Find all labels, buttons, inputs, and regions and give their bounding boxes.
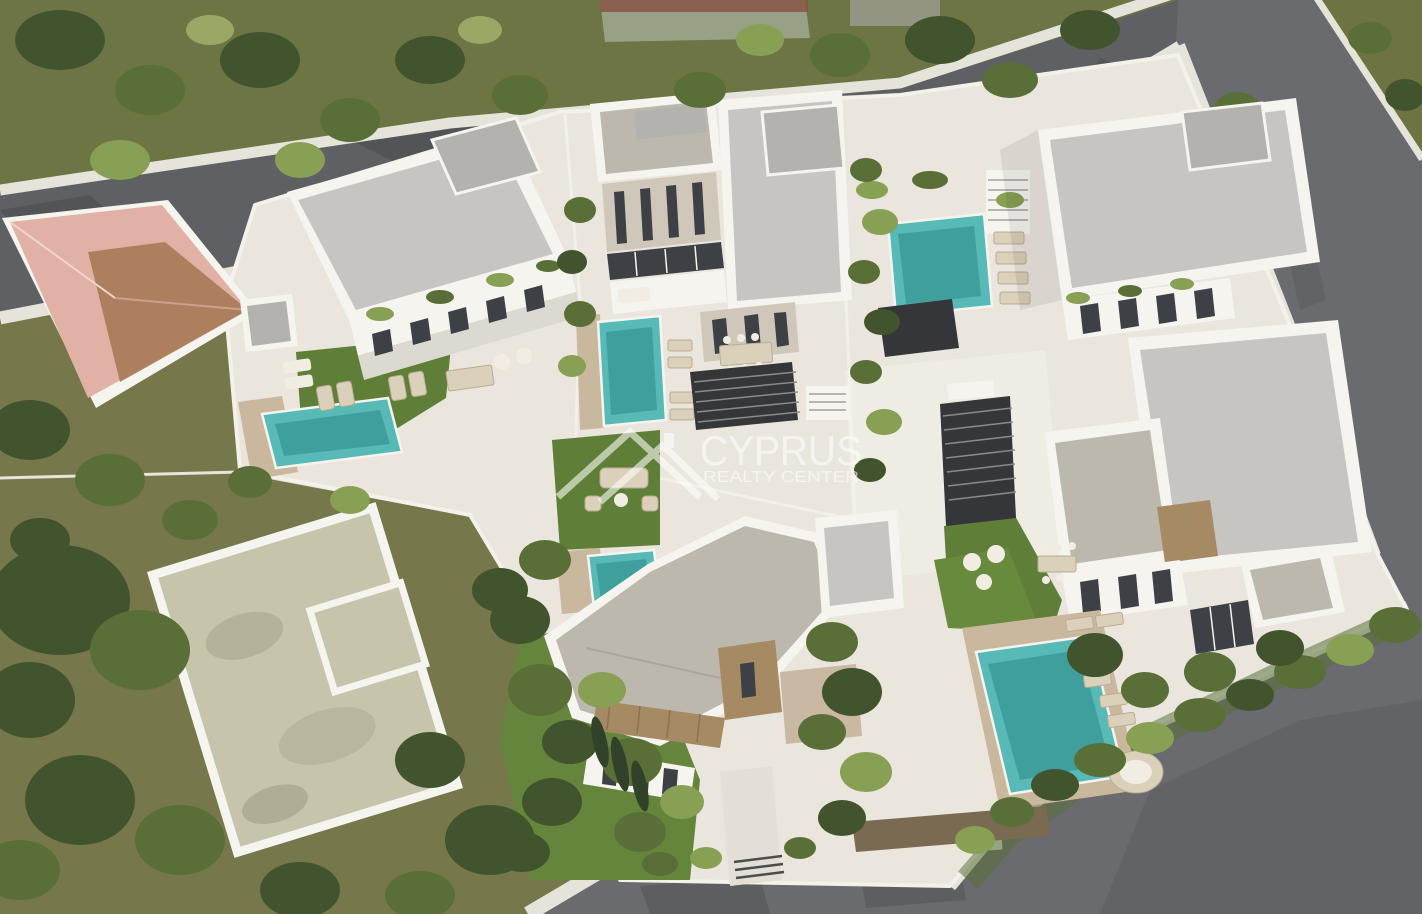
dining-table	[1038, 556, 1076, 572]
tree	[25, 755, 135, 845]
chair	[1040, 546, 1048, 554]
bush	[186, 15, 234, 45]
hedge-bush	[955, 826, 995, 854]
dining-table	[719, 342, 772, 366]
tree	[542, 720, 598, 764]
hedge-bush	[1369, 607, 1421, 643]
tree	[1121, 672, 1169, 708]
bush	[864, 309, 900, 335]
window	[1156, 293, 1177, 324]
tree	[75, 454, 145, 506]
tree	[135, 805, 225, 875]
tree	[818, 800, 866, 836]
hedge-bush	[990, 797, 1034, 827]
planter	[1118, 285, 1142, 297]
window	[1118, 574, 1139, 609]
chair	[1056, 574, 1064, 582]
tree	[1184, 652, 1236, 692]
chair	[737, 334, 745, 342]
tree	[519, 540, 571, 580]
bush	[557, 250, 587, 274]
planter	[366, 307, 394, 321]
pouf	[963, 553, 981, 571]
old-building-roof-edge	[600, 0, 808, 12]
chair	[1068, 542, 1076, 550]
tree	[445, 805, 535, 875]
armchair	[585, 496, 601, 511]
bush	[850, 158, 882, 182]
scene-canvas: CYPRUS REALTY CENTER	[0, 0, 1422, 914]
pouf	[976, 574, 992, 590]
tree	[1348, 22, 1392, 54]
tree	[115, 65, 185, 115]
tree	[15, 10, 105, 70]
window	[1080, 303, 1101, 334]
tree	[798, 714, 846, 750]
tree	[806, 622, 858, 662]
chair	[494, 354, 510, 370]
hedge-bush	[642, 852, 678, 876]
tree	[492, 75, 548, 115]
villa-e-tower-roof	[824, 521, 894, 606]
pergola	[690, 362, 798, 430]
bush	[330, 486, 370, 514]
hedge-bush	[1326, 634, 1374, 666]
window	[740, 662, 756, 698]
tree	[810, 33, 870, 77]
window	[1194, 288, 1215, 319]
planter	[486, 273, 514, 287]
window	[1080, 579, 1101, 614]
lounger	[670, 409, 694, 420]
planter	[912, 171, 948, 189]
tree	[522, 778, 582, 826]
tree	[660, 785, 704, 819]
aerial-render: CYPRUS REALTY CENTER	[0, 0, 1422, 914]
tree	[220, 32, 300, 88]
tree	[674, 72, 726, 108]
tree	[1067, 633, 1123, 677]
watermark-subtitle: REALTY CENTER	[703, 469, 859, 486]
hedge-bush	[1226, 679, 1274, 711]
chair	[1042, 576, 1050, 584]
bush	[458, 16, 502, 44]
hedge-bush	[690, 847, 722, 869]
hedge-bush	[1126, 722, 1174, 754]
pouf	[987, 545, 1005, 563]
tree	[905, 16, 975, 64]
bush	[850, 360, 882, 384]
tree	[320, 98, 380, 142]
chair	[723, 336, 731, 344]
hedge-bush	[1174, 698, 1226, 732]
lounger	[668, 357, 692, 368]
armchair	[642, 496, 658, 511]
planter	[1066, 292, 1090, 304]
chair	[751, 333, 759, 341]
villa-b-roof-box	[762, 105, 844, 175]
garage-roof	[247, 301, 291, 346]
planter	[536, 260, 560, 272]
tree	[90, 140, 150, 180]
tree	[508, 664, 572, 716]
bush	[866, 409, 902, 435]
bush	[228, 466, 272, 498]
tree	[840, 752, 892, 792]
bush	[564, 197, 596, 223]
tree	[162, 500, 218, 540]
hedge-bush	[1031, 769, 1079, 801]
tree	[395, 36, 465, 84]
planter	[856, 181, 888, 199]
lounger	[670, 392, 694, 403]
tree	[90, 610, 190, 690]
tree	[395, 732, 465, 788]
window	[1118, 298, 1139, 329]
watermark-title: CYPRUS	[700, 427, 862, 474]
tree	[275, 142, 325, 178]
villa-c-pool-deep	[898, 226, 981, 304]
chair	[1054, 544, 1062, 552]
villa-b-pool-deep	[606, 327, 657, 415]
bush	[862, 209, 898, 235]
tree	[472, 568, 528, 612]
wood-slat-panel	[1157, 500, 1218, 563]
daybed	[617, 287, 650, 304]
tree	[736, 24, 784, 56]
planter	[1170, 278, 1194, 290]
chair	[516, 348, 532, 364]
tree	[982, 62, 1038, 98]
tree	[614, 812, 666, 852]
window	[1152, 569, 1173, 604]
logo-chimney	[664, 433, 674, 448]
hedge-bush	[784, 837, 816, 859]
tree	[1256, 630, 1304, 666]
bush	[564, 301, 596, 327]
villa-c-roof-box	[1182, 103, 1270, 170]
hedge-bush	[1074, 743, 1126, 777]
bush	[848, 260, 880, 284]
coffee-table	[614, 493, 628, 507]
tree	[578, 672, 626, 708]
bush	[558, 355, 586, 377]
tree	[1060, 10, 1120, 50]
planter	[426, 290, 454, 304]
tree	[822, 668, 882, 716]
lounger	[668, 340, 692, 351]
